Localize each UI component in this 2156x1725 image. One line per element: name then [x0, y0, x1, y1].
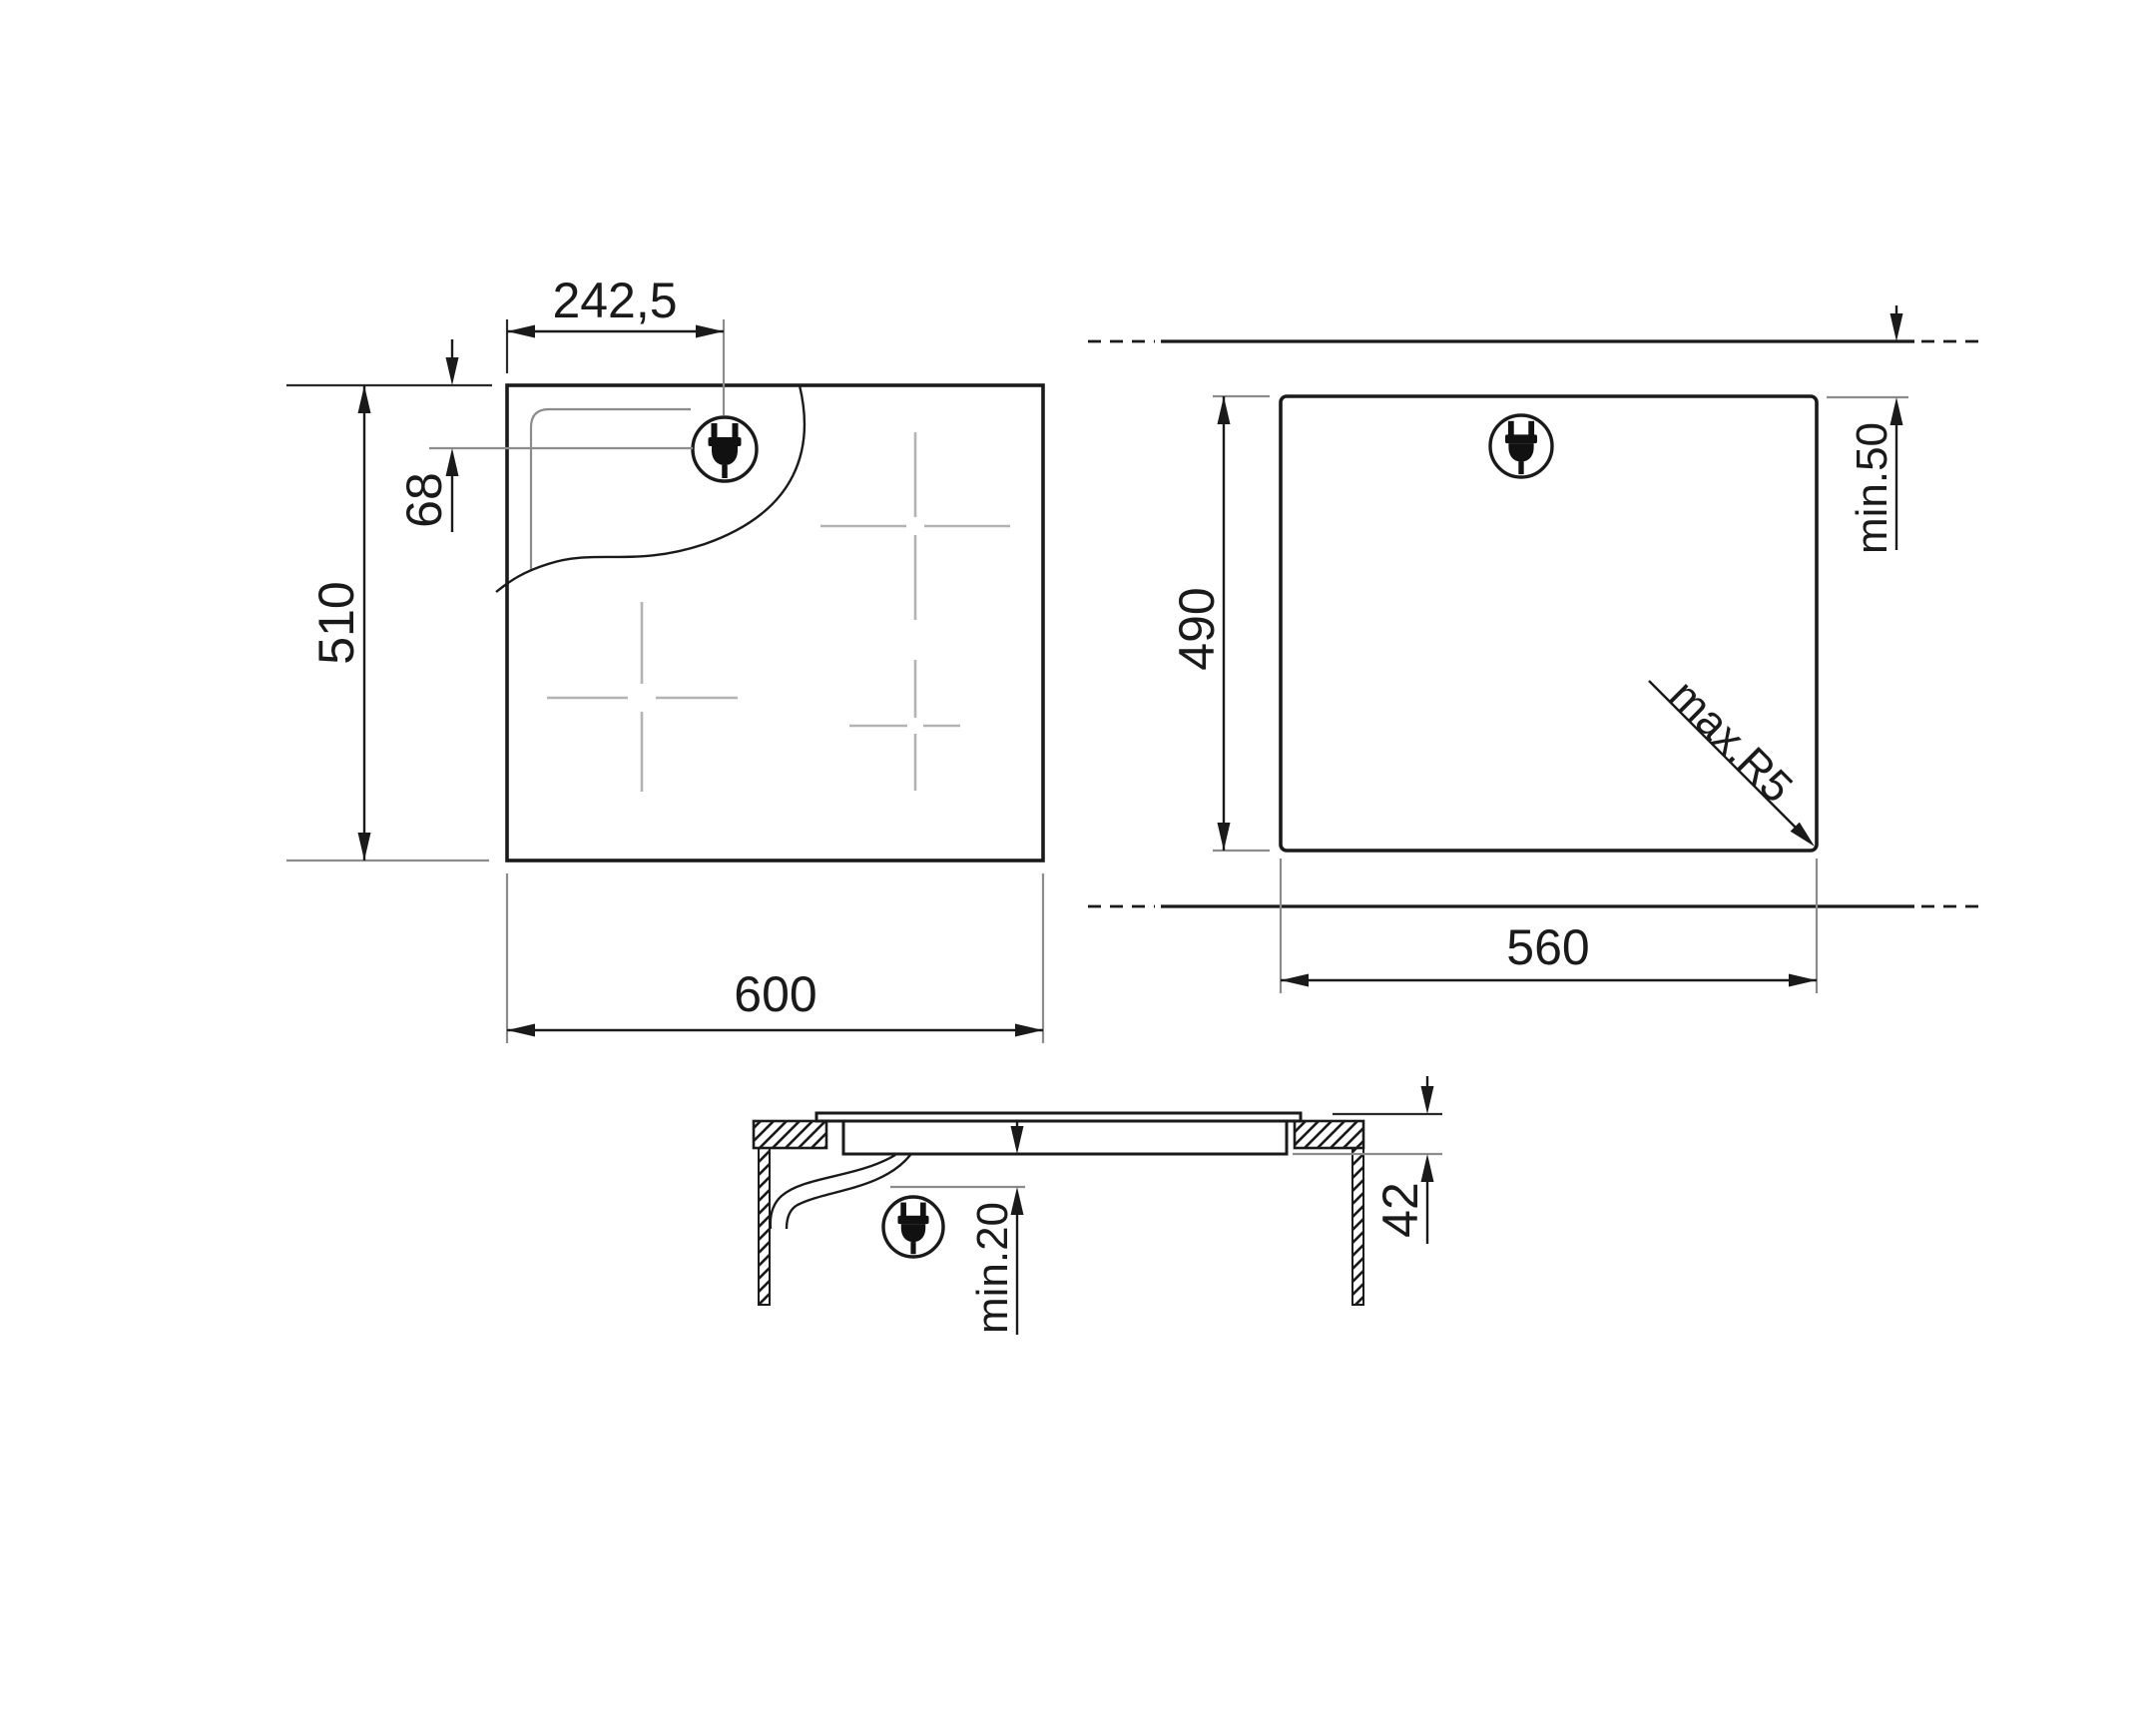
dim-hob-depth: 510 [286, 385, 489, 861]
cutout-rect [1281, 396, 1817, 851]
hob-outline [507, 385, 1043, 861]
dim-label-cutout-depth: 490 [1169, 587, 1225, 670]
cutout-plan-view: 490 min.50 max.R5 [1088, 305, 1984, 993]
dim-hob-width: 600 [507, 873, 1043, 1043]
installation-diagram: 242,5 68 510 600 [0, 0, 2156, 1725]
dim-cutout-depth: 490 [1169, 396, 1270, 851]
section-view: min.20 42 [754, 1076, 1442, 1335]
worktop-section-right [1295, 1121, 1363, 1148]
glass-panel-section [816, 1113, 1301, 1121]
installation-diagram-page: 242,5 68 510 600 [0, 0, 2156, 1725]
cabinet-wall-right [1352, 1148, 1363, 1305]
dim-label-plug-offset-x: 242,5 [552, 273, 677, 328]
dim-label-hob-height: 42 [1372, 1182, 1428, 1238]
plug-icon-section-view [883, 1197, 943, 1257]
worktop-section-left [754, 1121, 826, 1148]
hob-body-section [843, 1121, 1287, 1154]
dim-label-bottom-clearance: min.20 [968, 1202, 1017, 1334]
dim-hob-height: 42 [1293, 1076, 1442, 1244]
plug-icon-cutout-view [1490, 415, 1552, 477]
plug-icon-top-view [693, 417, 757, 481]
dim-label-hob-depth: 510 [308, 581, 364, 664]
dim-label-hob-width: 600 [734, 966, 816, 1022]
dim-label-plug-offset-y: 68 [396, 472, 452, 528]
dim-label-rear-clearance: min.50 [1848, 422, 1896, 554]
cabinet-wall-left [759, 1148, 770, 1305]
dim-cutout-width: 560 [1281, 859, 1817, 993]
dim-label-cutout-width: 560 [1506, 919, 1589, 975]
hob-top-view: 242,5 68 510 600 [286, 273, 1043, 1043]
